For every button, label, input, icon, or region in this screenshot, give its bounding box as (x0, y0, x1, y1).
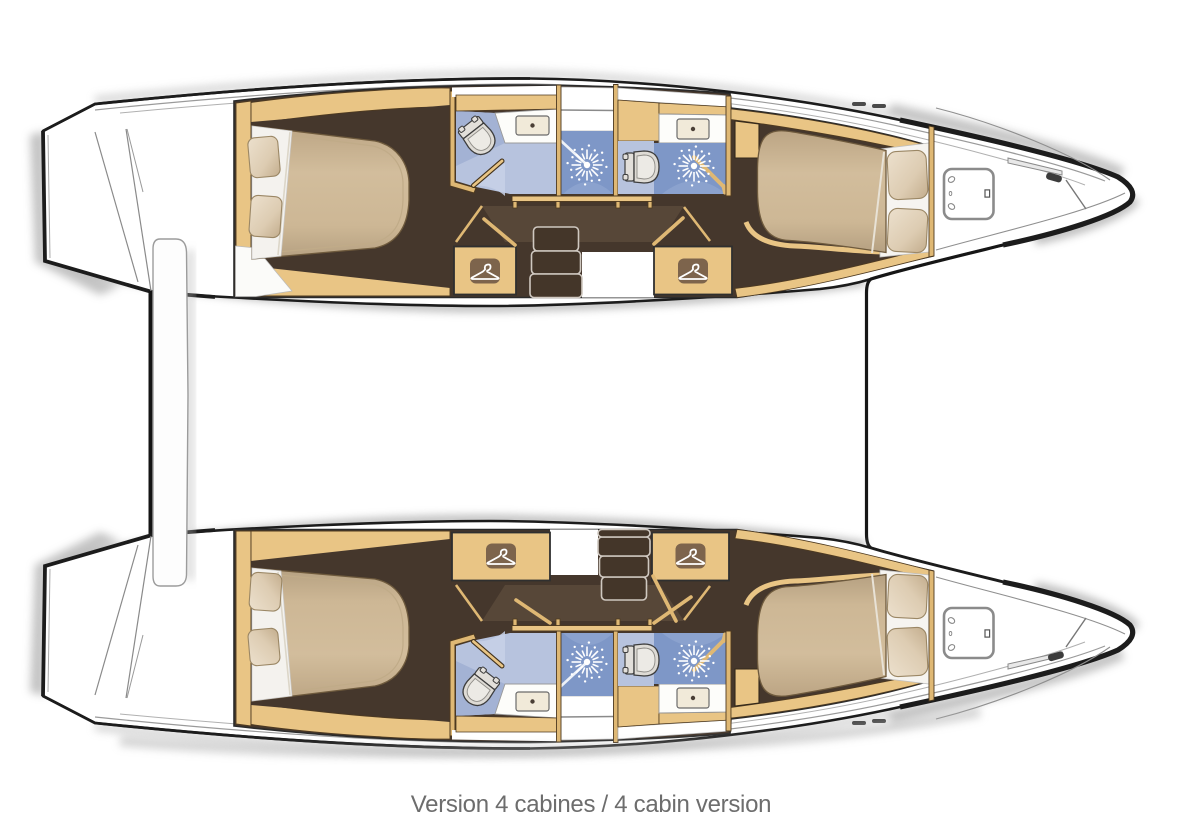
svg-text:Version 4 cabines / 4 cabin ve: Version 4 cabines / 4 cabin version (411, 791, 771, 818)
